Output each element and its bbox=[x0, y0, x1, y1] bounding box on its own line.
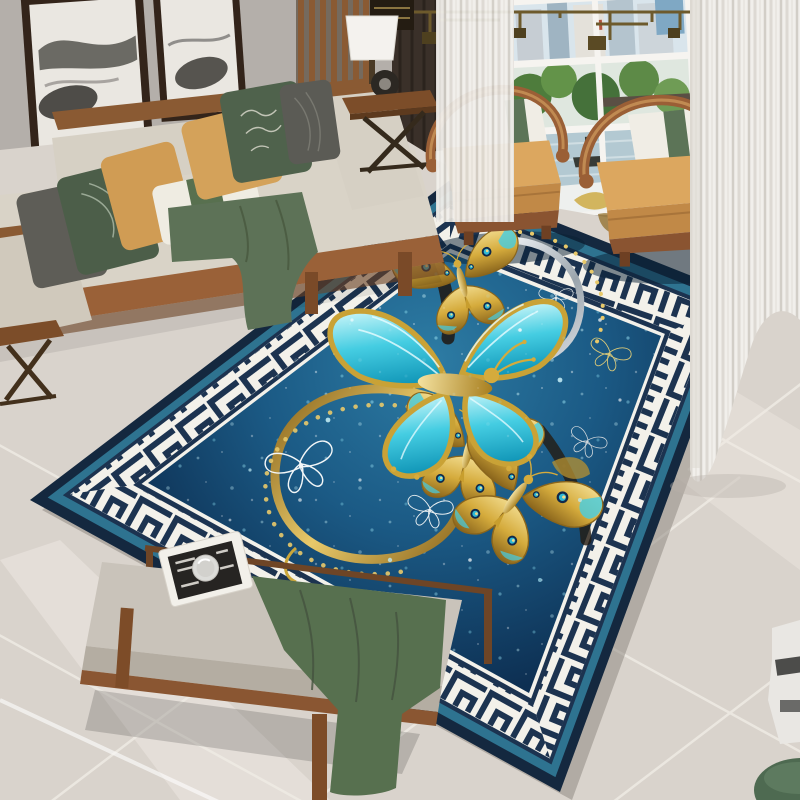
left-sheer-curtain bbox=[436, 0, 514, 222]
scene bbox=[0, 0, 800, 800]
pillow-charcoal-leaf bbox=[279, 79, 342, 165]
bench-leg-front bbox=[312, 714, 327, 800]
sofa-leg-mid bbox=[305, 272, 318, 314]
living-room-photo bbox=[0, 0, 800, 800]
sofa-leg-right bbox=[398, 252, 412, 296]
lamp-shade bbox=[346, 16, 398, 60]
curtain-floor-shadow bbox=[670, 474, 786, 498]
bench-end-post bbox=[484, 590, 492, 664]
